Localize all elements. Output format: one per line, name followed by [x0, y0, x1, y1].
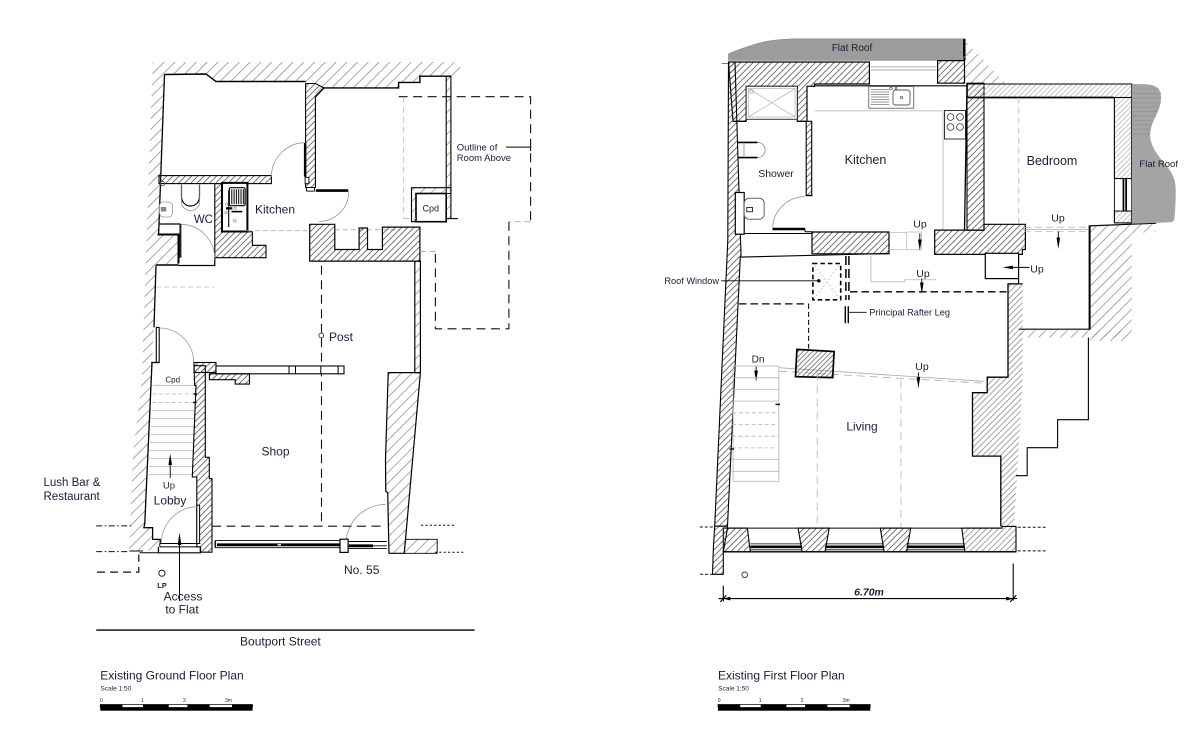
svg-text:Up: Up — [913, 219, 927, 231]
svg-text:1: 1 — [141, 698, 144, 704]
svg-text:Room Above: Room Above — [457, 153, 511, 164]
svg-text:0: 0 — [718, 698, 721, 704]
svg-text:Restaurant: Restaurant — [44, 491, 101, 503]
svg-text:Shower: Shower — [758, 168, 794, 180]
svg-text:Cpd: Cpd — [423, 203, 440, 213]
svg-text:Dn: Dn — [752, 355, 765, 366]
svg-text:No. 55: No. 55 — [344, 563, 380, 577]
svg-text:2: 2 — [183, 698, 186, 704]
svg-text:Post: Post — [329, 330, 354, 344]
svg-text:Kitchen: Kitchen — [845, 153, 887, 167]
svg-text:Lush Bar &: Lush Bar & — [44, 477, 101, 489]
svg-text:Shop: Shop — [261, 445, 289, 459]
svg-text:Living: Living — [846, 420, 877, 434]
svg-text:Principal Rafter Leg: Principal Rafter Leg — [869, 308, 950, 318]
svg-text:Flat Roof: Flat Roof — [1139, 159, 1178, 170]
svg-text:Roof Window: Roof Window — [664, 276, 719, 286]
svg-text:3m: 3m — [843, 698, 850, 704]
svg-text:Up: Up — [163, 481, 175, 492]
svg-text:Cpd: Cpd — [165, 376, 180, 385]
svg-text:to Flat: to Flat — [165, 603, 199, 617]
svg-text:1: 1 — [759, 698, 762, 704]
svg-text:Up: Up — [915, 361, 929, 373]
svg-text:Kitchen: Kitchen — [255, 203, 295, 217]
svg-text:0: 0 — [100, 698, 103, 704]
svg-text:2: 2 — [801, 698, 804, 704]
svg-text:Up: Up — [1051, 213, 1065, 225]
svg-text:WC: WC — [194, 214, 213, 226]
svg-text:Flat Roof: Flat Roof — [832, 43, 873, 54]
svg-text:Scale 1:50: Scale 1:50 — [101, 686, 132, 693]
svg-text:Lobby: Lobby — [154, 494, 187, 508]
svg-text:6.70m: 6.70m — [854, 587, 884, 599]
svg-text:Bedroom: Bedroom — [1027, 154, 1078, 168]
svg-text:Existing Ground Floor Plan: Existing Ground Floor Plan — [100, 669, 243, 683]
svg-text:Up: Up — [916, 268, 930, 280]
svg-text:Boutport Street: Boutport Street — [240, 635, 321, 649]
svg-text:Scale 1:50: Scale 1:50 — [718, 686, 749, 693]
svg-text:Existing First Floor Plan: Existing First Floor Plan — [718, 669, 845, 683]
svg-text:Up: Up — [1030, 264, 1044, 276]
svg-text:Access: Access — [164, 590, 203, 604]
svg-text:Outline of: Outline of — [457, 143, 498, 154]
svg-text:3m: 3m — [225, 698, 232, 704]
